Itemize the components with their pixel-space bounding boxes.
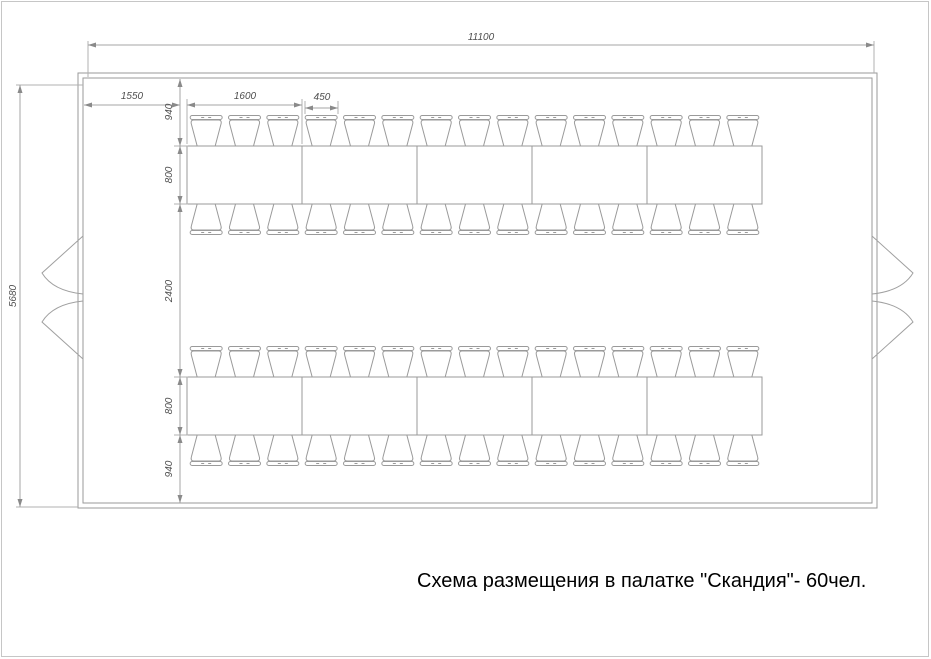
chair (190, 347, 222, 378)
chair (535, 204, 567, 235)
chair (727, 116, 759, 147)
door-swing-right (872, 236, 913, 359)
chair (459, 347, 491, 378)
chair (497, 435, 529, 466)
chair (497, 116, 529, 147)
chair (420, 116, 452, 147)
chair (574, 435, 606, 466)
chair (574, 116, 606, 147)
chair (305, 347, 337, 378)
chair (190, 116, 222, 147)
dim-label-gap-top: 940 (164, 103, 175, 120)
dim-label-tent-width: 11100 (468, 32, 495, 43)
chair (344, 204, 376, 235)
dim-tent-depth: 5680 (8, 85, 83, 507)
chair (727, 204, 759, 235)
dim-wall-to-table: 1550 (84, 91, 180, 105)
chair (420, 347, 452, 378)
chair (344, 347, 376, 378)
chair (497, 347, 529, 378)
chair (574, 347, 606, 378)
chair (612, 116, 644, 147)
chair (497, 204, 529, 235)
chair (535, 116, 567, 147)
dim-label-center-aisle: 2400 (164, 279, 175, 303)
chair (612, 204, 644, 235)
dim-label-chair-pitch: 450 (314, 92, 331, 103)
chair (305, 204, 337, 235)
dim-chair-pitch: 450 (305, 92, 338, 114)
table (187, 146, 762, 204)
chair (459, 435, 491, 466)
chair (420, 435, 452, 466)
door-swing-left (42, 236, 83, 359)
chair (574, 204, 606, 235)
dim-label-table-depth-top: 800 (164, 166, 175, 183)
drawing-page: 11100 5680 1550 1600 450 (0, 0, 931, 659)
chair (535, 347, 567, 378)
chair (689, 435, 721, 466)
chair (267, 347, 299, 378)
chair (650, 204, 682, 235)
chair (229, 347, 261, 378)
dim-label-tent-depth: 5680 (8, 284, 19, 307)
chair (420, 204, 452, 235)
chair (305, 116, 337, 147)
chair (612, 435, 644, 466)
chair (267, 204, 299, 235)
dim-label-table-section: 1600 (234, 91, 257, 102)
chair (689, 204, 721, 235)
chair (535, 435, 567, 466)
dim-tent-width: 11100 (88, 32, 874, 77)
chair (459, 116, 491, 147)
drawing-caption: Схема размещения в палатке "Скандия"- 60… (417, 570, 866, 593)
chair (382, 116, 414, 147)
chair (190, 435, 222, 466)
chair (459, 204, 491, 235)
table (187, 377, 762, 435)
chair (382, 347, 414, 378)
chair (727, 435, 759, 466)
chair (190, 204, 222, 235)
chair (650, 347, 682, 378)
chair (267, 116, 299, 147)
chair (689, 347, 721, 378)
chair (650, 435, 682, 466)
chair (382, 435, 414, 466)
chair (229, 204, 261, 235)
chair (229, 116, 261, 147)
chair (727, 347, 759, 378)
chair (612, 347, 644, 378)
dim-label-gap-bottom: 940 (164, 460, 175, 477)
chair (267, 435, 299, 466)
chair (229, 435, 261, 466)
chair (382, 204, 414, 235)
chair (305, 435, 337, 466)
dim-label-wall-to-table: 1550 (121, 91, 144, 102)
chair (344, 116, 376, 147)
chair (689, 116, 721, 147)
tables-layer (187, 146, 762, 435)
floor-plan: 11100 5680 1550 1600 450 (0, 0, 931, 659)
chair (344, 435, 376, 466)
dim-label-table-depth-bottom: 800 (164, 397, 175, 414)
chair (650, 116, 682, 147)
dim-vertical-chain: 940 800 2400 800 940 (164, 79, 188, 503)
